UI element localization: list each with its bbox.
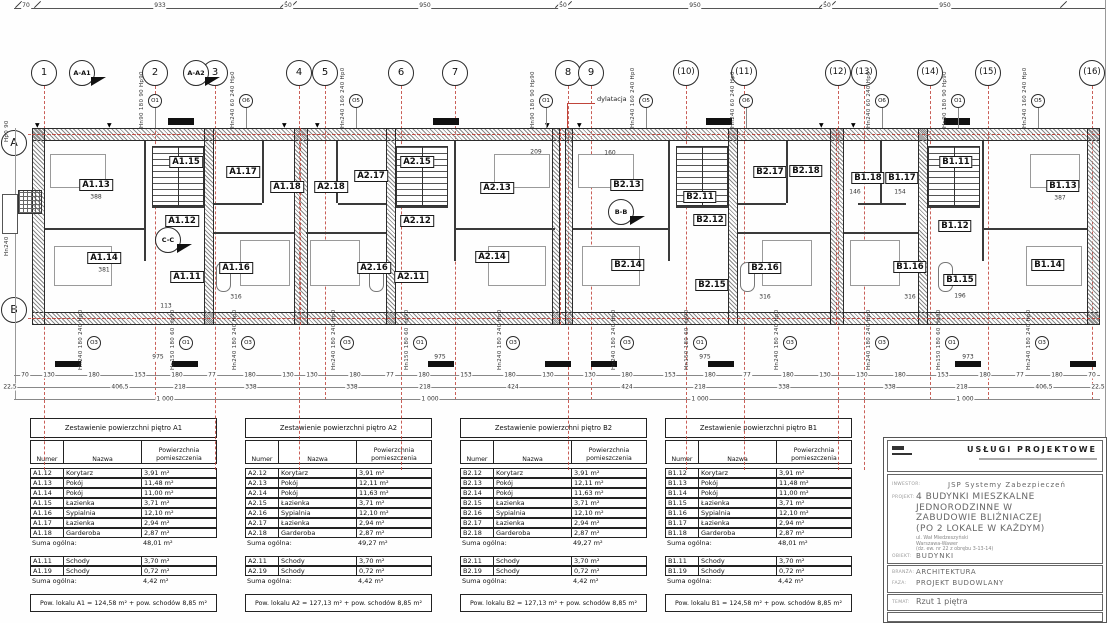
- table-cell-nazwa: Łazienka: [278, 518, 357, 528]
- table-suma-label: Suma ogólna:: [247, 539, 292, 547]
- table-cell-numer: A1.12: [30, 468, 64, 478]
- inwestor-value: JSP Systemy Zabezpieczeń: [948, 481, 1066, 489]
- table-cell-numer: A1.15: [30, 498, 64, 508]
- project-title-line: JEDNORODZINNE W: [916, 503, 1045, 514]
- table-col-header: Nazwa: [698, 440, 777, 464]
- table-cell-nazwa: Korytarz: [63, 468, 142, 478]
- project-title-line: ZABUDOWIE BLIŹNIACZEJ: [916, 513, 1045, 524]
- title-block-main-box: INWESTOR: JSP Systemy Zabezpieczeń PROJE…: [887, 474, 1103, 564]
- title-block-topic-box: TEMAT: Rzut 1 piętra: [887, 594, 1103, 611]
- table-cell-numer: B1.11: [665, 556, 699, 566]
- table-cell-pow: 2,94 m²: [571, 518, 647, 528]
- table-cell-nazwa: Pokój: [493, 488, 572, 498]
- table-suma-label: Suma ogólna:: [32, 539, 77, 547]
- office-subline: [979, 458, 1097, 460]
- table-suma-value: 4,42 m²: [573, 577, 598, 585]
- table-cell-numer: B1.12: [665, 468, 699, 478]
- table-cell-nazwa: Schody: [63, 556, 142, 566]
- project-title-line: 4 BUDYNKI MIESZKALNE: [916, 492, 1045, 503]
- obiekt-label: OBIEKT:: [892, 554, 911, 559]
- table-title: Zestawienie powierzchni piętro B2: [460, 418, 647, 438]
- table-cell-nazwa: Schody: [278, 566, 357, 576]
- table-cell-nazwa: Pokój: [698, 478, 777, 488]
- table-col-header-line: Powierzchnia: [142, 447, 216, 455]
- table-cell-pow: 3,91 m²: [141, 468, 217, 478]
- table-suma-value: 49,27 m²: [358, 539, 388, 547]
- temat-value: Rzut 1 piętra: [916, 597, 968, 606]
- table-cell-nazwa: Schody: [493, 556, 572, 566]
- table-col-header: Powierzchniapomieszczenia: [141, 440, 217, 464]
- table-cell-numer: B1.17: [665, 518, 699, 528]
- faza-label: FAZA:: [892, 581, 906, 586]
- table-cell-nazwa: Korytarz: [698, 468, 777, 478]
- table-col-header: Nazwa: [493, 440, 572, 464]
- area-table-B1: Zestawienie powierzchni piętro B1NumerNa…: [665, 418, 852, 618]
- table-col-header: Numer: [30, 440, 64, 464]
- table-title: Zestawienie powierzchni piętro B1: [665, 418, 852, 438]
- table-cell-pow: 12,10 m²: [141, 508, 217, 518]
- table-cell-nazwa: Pokój: [63, 488, 142, 498]
- table-cell-numer: B1.18: [665, 528, 699, 538]
- table-title: Zestawienie powierzchni piętro A1: [30, 418, 217, 438]
- title-block-logo-box: USŁUGI PROJEKTOWE: [887, 440, 1103, 472]
- projekt-label: PROJEKT:: [892, 495, 914, 500]
- table-cell-pow: 11,48 m²: [141, 478, 217, 488]
- table-cell-nazwa: Schody: [698, 556, 777, 566]
- table-cell-numer: A2.11: [245, 556, 279, 566]
- table-footer: Pow. lokalu B2 = 127,13 m² + pow. schodó…: [460, 594, 647, 612]
- table-cell-nazwa: Łazienka: [493, 498, 572, 508]
- design-office-name: USŁUGI PROJEKTOWE: [967, 445, 1097, 454]
- office-logo: [892, 446, 912, 455]
- table-cell-nazwa: Garderoba: [278, 528, 357, 538]
- obiekt-value: BUDYNKI: [916, 552, 954, 560]
- table-col-header-line: Powierzchnia: [572, 447, 646, 455]
- project-title: 4 BUDYNKI MIESZKALNE JEDNORODZINNE W ZAB…: [916, 492, 1045, 534]
- table-cell-pow: 2,94 m²: [356, 518, 432, 528]
- table-cell-numer: B2.18: [460, 528, 494, 538]
- table-cell-numer: B1.16: [665, 508, 699, 518]
- table-cell-pow: 2,87 m²: [356, 528, 432, 538]
- table-cell-numer: B2.16: [460, 508, 494, 518]
- table-cell-nazwa: Sypialnia: [698, 508, 777, 518]
- table-cell-numer: A2.13: [245, 478, 279, 488]
- table-cell-nazwa: Łazienka: [698, 518, 777, 528]
- title-block: USŁUGI PROJEKTOWE INWESTOR: JSP Systemy …: [883, 437, 1107, 623]
- table-col-header-line: Powierzchnia: [357, 447, 431, 455]
- table-suma-value: 4,42 m²: [143, 577, 168, 585]
- table-cell-pow: 0,72 m²: [776, 566, 852, 576]
- title-block-empty-box: [887, 612, 1103, 622]
- table-suma-value: 48,01 m²: [143, 539, 173, 547]
- table-col-header: Powierzchniapomieszczenia: [571, 440, 647, 464]
- title-block-branch-box: BRANŻA: ARCHITEKTURA FAZA: PROJEKT BUDOW…: [887, 565, 1103, 593]
- table-cell-pow: 0,72 m²: [141, 566, 217, 576]
- table-cell-pow: 2,94 m²: [776, 518, 852, 528]
- table-cell-nazwa: Sypialnia: [493, 508, 572, 518]
- table-col-header-line: pomieszczenia: [572, 455, 646, 463]
- table-cell-numer: A1.13: [30, 478, 64, 488]
- table-cell-numer: A1.17: [30, 518, 64, 528]
- table-col-header: Powierzchniapomieszczenia: [356, 440, 432, 464]
- table-cell-numer: A1.18: [30, 528, 64, 538]
- table-cell-nazwa: Garderoba: [63, 528, 142, 538]
- table-suma-label: Suma ogólna:: [247, 577, 292, 585]
- table-cell-numer: A1.16: [30, 508, 64, 518]
- table-cell-numer: A1.19: [30, 566, 64, 576]
- table-cell-numer: B1.15: [665, 498, 699, 508]
- table-cell-numer: B2.11: [460, 556, 494, 566]
- table-cell-pow: 11,00 m²: [141, 488, 217, 498]
- table-cell-pow: 3,91 m²: [776, 468, 852, 478]
- table-cell-numer: A2.15: [245, 498, 279, 508]
- table-cell-nazwa: Łazienka: [698, 498, 777, 508]
- table-col-header-line: pomieszczenia: [357, 455, 431, 463]
- table-cell-pow: 3,70 m²: [356, 556, 432, 566]
- table-cell-nazwa: Łazienka: [493, 518, 572, 528]
- table-col-header: Nazwa: [278, 440, 357, 464]
- table-cell-pow: 0,72 m²: [571, 566, 647, 576]
- table-suma-value: 48,01 m²: [778, 539, 808, 547]
- table-cell-pow: 3,71 m²: [356, 498, 432, 508]
- table-cell-nazwa: Sypialnia: [63, 508, 142, 518]
- table-cell-nazwa: Schody: [278, 556, 357, 566]
- table-cell-numer: B1.13: [665, 478, 699, 488]
- table-suma-label: Suma ogólna:: [32, 577, 77, 585]
- table-cell-nazwa: Łazienka: [63, 518, 142, 528]
- table-cell-nazwa: Korytarz: [493, 468, 572, 478]
- inwestor-label: INWESTOR:: [892, 482, 920, 487]
- table-cell-numer: B2.12: [460, 468, 494, 478]
- table-col-header: Numer: [665, 440, 699, 464]
- table-cell-pow: 3,70 m²: [141, 556, 217, 566]
- table-cell-nazwa: Sypialnia: [278, 508, 357, 518]
- table-col-header-line: pomieszczenia: [142, 455, 216, 463]
- table-suma-value: 4,42 m²: [358, 577, 383, 585]
- table-cell-pow: 3,70 m²: [571, 556, 647, 566]
- table-cell-pow: 11,48 m²: [776, 478, 852, 488]
- area-table-B2: Zestawienie powierzchni piętro B2NumerNa…: [460, 418, 647, 618]
- table-cell-pow: 2,87 m²: [776, 528, 852, 538]
- table-cell-nazwa: Pokój: [493, 478, 572, 488]
- table-suma-label: Suma ogólna:: [667, 577, 712, 585]
- table-cell-pow: 2,94 m²: [141, 518, 217, 528]
- table-cell-pow: 0,72 m²: [356, 566, 432, 576]
- table-suma-label: Suma ogólna:: [462, 577, 507, 585]
- table-suma-value: 4,42 m²: [778, 577, 803, 585]
- table-cell-numer: A2.18: [245, 528, 279, 538]
- table-cell-nazwa: Garderoba: [493, 528, 572, 538]
- table-col-header: Nazwa: [63, 440, 142, 464]
- branza-label: BRANŻA:: [892, 570, 914, 575]
- table-cell-pow: 11,00 m²: [776, 488, 852, 498]
- table-cell-nazwa: Łazienka: [63, 498, 142, 508]
- table-cell-nazwa: Schody: [493, 566, 572, 576]
- table-cell-pow: 11,63 m²: [356, 488, 432, 498]
- table-footer: Pow. lokalu A1 = 124,58 m² + pow. schodó…: [30, 594, 217, 612]
- table-cell-nazwa: Korytarz: [278, 468, 357, 478]
- table-cell-numer: B2.19: [460, 566, 494, 576]
- branza-value: ARCHITEKTURA: [916, 568, 976, 576]
- table-col-header: Numer: [245, 440, 279, 464]
- table-cell-nazwa: Pokój: [278, 478, 357, 488]
- table-cell-nazwa: Pokój: [278, 488, 357, 498]
- table-col-header: Numer: [460, 440, 494, 464]
- table-cell-numer: A2.19: [245, 566, 279, 576]
- table-cell-pow: 12,10 m²: [571, 508, 647, 518]
- table-footer: Pow. lokalu A2 = 127,13 m² + pow. schodó…: [245, 594, 432, 612]
- table-cell-pow: 12,11 m²: [571, 478, 647, 488]
- table-cell-pow: 12,10 m²: [776, 508, 852, 518]
- table-cell-nazwa: Schody: [698, 566, 777, 576]
- temat-label: TEMAT:: [892, 600, 910, 605]
- table-suma-value: 49,27 m²: [573, 539, 603, 547]
- table-cell-pow: 3,70 m²: [776, 556, 852, 566]
- table-cell-pow: 3,71 m²: [776, 498, 852, 508]
- table-cell-nazwa: Pokój: [698, 488, 777, 498]
- table-cell-numer: B1.19: [665, 566, 699, 576]
- area-table-A1: Zestawienie powierzchni piętro A1NumerNa…: [30, 418, 217, 618]
- table-cell-nazwa: Garderoba: [698, 528, 777, 538]
- table-cell-numer: B2.14: [460, 488, 494, 498]
- table-cell-pow: 3,91 m²: [571, 468, 647, 478]
- table-cell-nazwa: Łazienka: [278, 498, 357, 508]
- table-cell-pow: 3,91 m²: [356, 468, 432, 478]
- table-footer: Pow. lokalu B1 = 124,58 m² + pow. schodó…: [665, 594, 852, 612]
- table-suma-label: Suma ogólna:: [667, 539, 712, 547]
- table-cell-numer: A2.17: [245, 518, 279, 528]
- table-cell-numer: A2.16: [245, 508, 279, 518]
- table-cell-numer: B1.14: [665, 488, 699, 498]
- table-title: Zestawienie powierzchni piętro A2: [245, 418, 432, 438]
- table-cell-pow: 2,87 m²: [141, 528, 217, 538]
- table-cell-numer: A1.14: [30, 488, 64, 498]
- project-address: ul. Wał Miedzeszyński Warszawa-Wawer (dz…: [916, 536, 993, 553]
- table-cell-nazwa: Pokój: [63, 478, 142, 488]
- floor-plan-sheet: 70933509505095050950123456789(10)(11)(12…: [0, 0, 1110, 623]
- table-cell-pow: 11,63 m²: [571, 488, 647, 498]
- table-col-header: Powierzchniapomieszczenia: [776, 440, 852, 464]
- table-cell-pow: 2,87 m²: [571, 528, 647, 538]
- table-cell-pow: 12,10 m²: [356, 508, 432, 518]
- table-cell-nazwa: Schody: [63, 566, 142, 576]
- table-cell-numer: B2.13: [460, 478, 494, 488]
- table-cell-pow: 12,11 m²: [356, 478, 432, 488]
- area-table-A2: Zestawienie powierzchni piętro A2NumerNa…: [245, 418, 432, 618]
- table-cell-pow: 3,71 m²: [571, 498, 647, 508]
- table-cell-numer: A2.12: [245, 468, 279, 478]
- table-cell-numer: A1.11: [30, 556, 64, 566]
- table-cell-pow: 3,71 m²: [141, 498, 217, 508]
- project-title-line: (PO 2 LOKALE W KAŻDYM): [916, 524, 1045, 535]
- table-cell-numer: B2.15: [460, 498, 494, 508]
- table-col-header-line: pomieszczenia: [777, 455, 851, 463]
- table-cell-numer: B2.17: [460, 518, 494, 528]
- table-col-header-line: Powierzchnia: [777, 447, 851, 455]
- table-cell-numer: A2.14: [245, 488, 279, 498]
- table-suma-label: Suma ogólna:: [462, 539, 507, 547]
- faza-value: PROJEKT BUDOWLANY: [916, 579, 1004, 587]
